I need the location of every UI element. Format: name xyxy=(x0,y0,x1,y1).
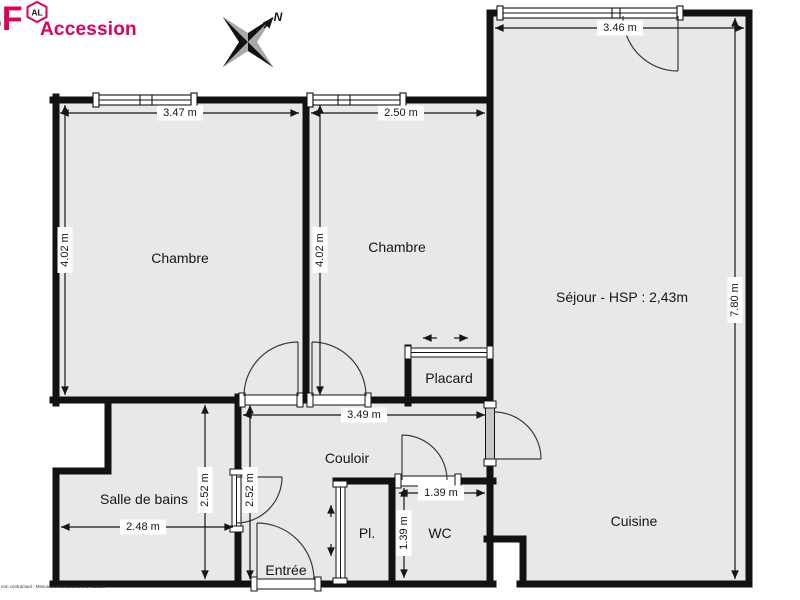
door-opening-chambre2 xyxy=(307,393,371,407)
logo-3f-text: 3F xyxy=(0,0,23,39)
disclaimer-text: non contractuel - Mesures et surfaces à … xyxy=(1,584,151,589)
label-pl: Pl. xyxy=(359,525,375,541)
badge-text: AL xyxy=(31,8,42,18)
label-chambre2: Chambre xyxy=(368,239,426,255)
dim-label: 2.50 m xyxy=(384,107,418,119)
label-chambre1: Chambre xyxy=(151,250,209,266)
window-chambre2 xyxy=(307,93,406,107)
dim-label: 7.80 m xyxy=(729,283,741,317)
label-wc: WC xyxy=(428,525,451,541)
window-sejour xyxy=(497,6,683,20)
label-sejour: Séjour - HSP : 2,43m xyxy=(556,289,688,305)
compass-rose-icon: N xyxy=(223,10,283,68)
dim-label: 2.52 m xyxy=(199,473,211,507)
dim-label: 3.46 m xyxy=(603,22,637,34)
dim-label: 2.52 m xyxy=(244,473,256,507)
label-entree: Entrée xyxy=(265,562,306,578)
door-opening-entree xyxy=(251,577,321,591)
floor-plan-page: 3.47 m 4.02 m 2.50 m 4.02 m 3.46 m 7.80 … xyxy=(0,0,800,600)
window-chambre1 xyxy=(93,93,197,107)
logo-accession-text: Accession xyxy=(40,19,137,41)
dim-label: 2.48 m xyxy=(126,521,160,533)
floor-plan: 3.47 m 4.02 m 2.50 m 4.02 m 3.46 m 7.80 … xyxy=(0,0,800,600)
dim-label: 4.02 m xyxy=(314,233,326,267)
label-couloir: Couloir xyxy=(325,450,370,466)
label-placard: Placard xyxy=(425,370,472,386)
dim-label: 3.49 m xyxy=(347,409,381,421)
sliding-door-placard xyxy=(405,346,493,359)
dim-label: 4.02 m xyxy=(59,233,71,267)
dim-label: 1.39 m xyxy=(398,516,410,550)
door-opening-chambre1 xyxy=(239,393,303,407)
label-salle-de-bains: Salle de bains xyxy=(100,491,188,507)
dim-label: 3.47 m xyxy=(163,107,197,119)
door-panel-sejour xyxy=(484,401,496,466)
label-cuisine: Cuisine xyxy=(611,513,658,529)
north-label: N xyxy=(274,10,283,24)
dim-label: 1.39 m xyxy=(424,487,458,499)
